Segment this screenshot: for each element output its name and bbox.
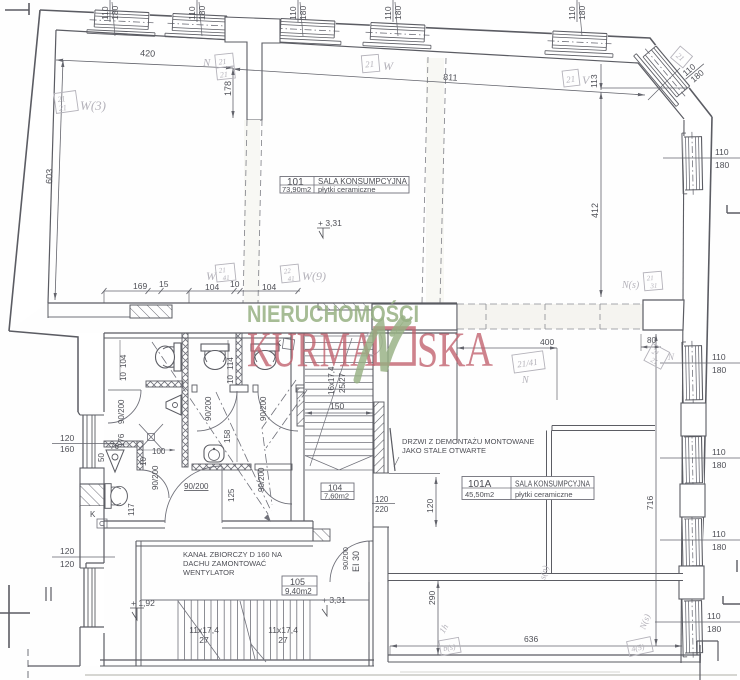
svg-text:KANAŁ ZBIORCZY D 160 NA: KANAŁ ZBIORCZY D 160 NA bbox=[183, 550, 282, 559]
svg-text:11x17,4: 11x17,4 bbox=[268, 625, 298, 635]
svg-text:120: 120 bbox=[60, 433, 74, 443]
svg-text:27: 27 bbox=[199, 635, 209, 645]
svg-text:DRZWI Z DEMONTAŻU MONTOWANE: DRZWI Z DEMONTAŻU MONTOWANE bbox=[402, 437, 534, 446]
svg-text:W(9): W(9) bbox=[302, 269, 326, 283]
svg-text:158: 158 bbox=[223, 429, 232, 443]
svg-text:80: 80 bbox=[647, 336, 656, 345]
svg-text:180: 180 bbox=[298, 6, 308, 20]
svg-text:120: 120 bbox=[60, 546, 74, 556]
svg-text:178: 178 bbox=[223, 81, 233, 96]
svg-text:N: N bbox=[667, 352, 675, 362]
svg-text:90/200: 90/200 bbox=[259, 396, 268, 421]
svg-text:180: 180 bbox=[707, 624, 721, 634]
svg-text:412: 412 bbox=[590, 203, 600, 218]
svg-text:21: 21 bbox=[58, 103, 67, 113]
svg-text:KURMA: KURMA bbox=[247, 321, 375, 377]
svg-text:220: 220 bbox=[375, 505, 389, 514]
svg-text:104: 104 bbox=[119, 354, 128, 368]
svg-text:10: 10 bbox=[139, 457, 148, 466]
svg-text:114: 114 bbox=[226, 357, 235, 370]
svg-text:21: 21 bbox=[365, 59, 375, 70]
svg-text:120: 120 bbox=[425, 499, 435, 513]
svg-text:180: 180 bbox=[715, 160, 729, 170]
svg-text:811: 811 bbox=[443, 72, 458, 83]
svg-text:110: 110 bbox=[288, 6, 298, 20]
svg-text:100: 100 bbox=[152, 447, 166, 456]
svg-text:160: 160 bbox=[60, 444, 74, 454]
svg-text:120: 120 bbox=[60, 559, 74, 569]
svg-text:45,50m2: 45,50m2 bbox=[465, 490, 494, 499]
svg-text:W(3): W(3) bbox=[80, 98, 106, 113]
svg-text:31: 31 bbox=[649, 282, 658, 291]
svg-text:110: 110 bbox=[715, 147, 729, 157]
svg-text:125: 125 bbox=[227, 488, 236, 502]
svg-text:117: 117 bbox=[127, 503, 136, 516]
svg-text:K: K bbox=[90, 510, 96, 519]
svg-text:płytki ceramiczne: płytki ceramiczne bbox=[515, 490, 573, 499]
svg-text:110: 110 bbox=[100, 6, 110, 20]
svg-text:101A: 101A bbox=[468, 479, 492, 490]
svg-text:110: 110 bbox=[712, 529, 726, 539]
svg-text:90/200: 90/200 bbox=[151, 465, 160, 490]
svg-text:21: 21 bbox=[219, 70, 228, 80]
svg-text:+ 3,31: + 3,31 bbox=[318, 218, 342, 228]
svg-text:420: 420 bbox=[140, 48, 155, 59]
svg-text:150: 150 bbox=[330, 401, 344, 411]
svg-text:27: 27 bbox=[278, 635, 288, 645]
svg-text:EI 30: EI 30 bbox=[351, 551, 361, 572]
svg-text:110: 110 bbox=[707, 611, 721, 621]
svg-text:41: 41 bbox=[222, 274, 230, 283]
svg-text:90/200: 90/200 bbox=[117, 399, 126, 424]
svg-text:76: 76 bbox=[110, 442, 119, 451]
svg-text:180: 180 bbox=[712, 460, 726, 470]
svg-text:180: 180 bbox=[712, 542, 726, 552]
svg-text:90/200: 90/200 bbox=[341, 547, 350, 570]
svg-text:9,40m2: 9,40m2 bbox=[285, 587, 312, 596]
svg-text:716: 716 bbox=[645, 496, 655, 510]
svg-text:110: 110 bbox=[187, 6, 197, 20]
svg-text:SKA: SKA bbox=[417, 321, 493, 377]
svg-text:N: N bbox=[202, 57, 211, 69]
svg-text:104: 104 bbox=[262, 282, 276, 292]
svg-text:110: 110 bbox=[712, 352, 726, 362]
svg-text:41: 41 bbox=[287, 275, 295, 284]
svg-text:+ 1,92: + 1,92 bbox=[131, 598, 155, 608]
svg-text:N(s): N(s) bbox=[621, 280, 640, 291]
svg-text:SALA KONSUMPCYJNA: SALA KONSUMPCYJNA bbox=[515, 480, 591, 489]
svg-text:WENTYLATOR: WENTYLATOR bbox=[183, 568, 235, 577]
svg-text:603: 603 bbox=[44, 169, 55, 184]
svg-text:90/200: 90/200 bbox=[184, 482, 209, 491]
svg-text:104: 104 bbox=[205, 282, 219, 292]
svg-text:400: 400 bbox=[540, 337, 554, 347]
svg-text:10: 10 bbox=[119, 372, 128, 381]
svg-text:90/200: 90/200 bbox=[257, 467, 266, 492]
svg-text:50: 50 bbox=[97, 453, 106, 462]
svg-text:110: 110 bbox=[712, 447, 726, 457]
svg-text:110: 110 bbox=[567, 6, 577, 20]
svg-text:73,90m2: 73,90m2 bbox=[282, 185, 311, 194]
svg-text:11x17,4: 11x17,4 bbox=[189, 625, 219, 635]
svg-text:180: 180 bbox=[110, 6, 120, 20]
svg-text:N: N bbox=[521, 375, 530, 386]
svg-text:15: 15 bbox=[159, 279, 169, 289]
svg-text:120: 120 bbox=[375, 495, 389, 504]
svg-text:180: 180 bbox=[197, 6, 207, 20]
svg-text:90/200: 90/200 bbox=[204, 396, 213, 421]
svg-text:JAKO STALE OTWARTE: JAKO STALE OTWARTE bbox=[402, 446, 486, 455]
svg-text:169: 169 bbox=[133, 281, 147, 291]
svg-text:636: 636 bbox=[524, 634, 538, 644]
svg-text:180: 180 bbox=[577, 6, 587, 20]
svg-text:21: 21 bbox=[218, 57, 227, 67]
svg-text:10: 10 bbox=[226, 375, 235, 384]
svg-text:113: 113 bbox=[589, 74, 599, 88]
svg-text:W: W bbox=[383, 59, 394, 73]
svg-text:DACHU ZAMONTOWAĆ: DACHU ZAMONTOWAĆ bbox=[183, 559, 267, 568]
svg-text:180: 180 bbox=[712, 365, 726, 375]
svg-text:płytki ceramiczne: płytki ceramiczne bbox=[318, 185, 376, 194]
svg-text:180: 180 bbox=[393, 6, 403, 20]
svg-text:7,60m2: 7,60m2 bbox=[324, 492, 349, 501]
svg-text:105: 105 bbox=[290, 577, 305, 587]
svg-text:290: 290 bbox=[427, 591, 437, 605]
svg-text:21: 21 bbox=[566, 74, 576, 85]
svg-text:W: W bbox=[206, 269, 217, 283]
svg-text:110: 110 bbox=[383, 6, 393, 20]
